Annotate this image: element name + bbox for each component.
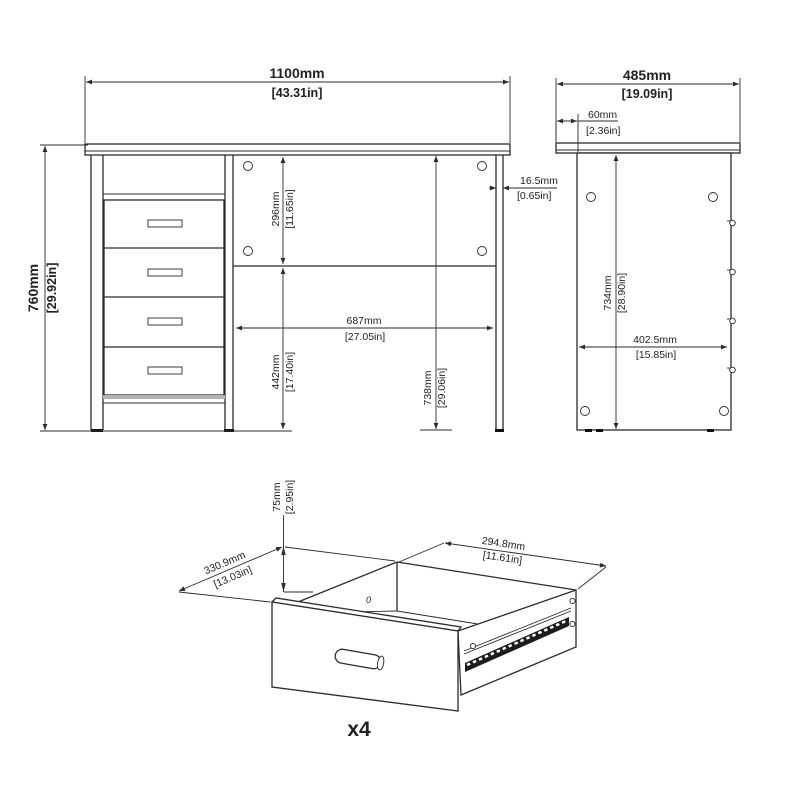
dim-front-height-mm: 760mm xyxy=(25,264,41,312)
assembly-drawing-page: 1100mm [43.31in] 760mm [29.92in] 296mm [… xyxy=(0,0,800,800)
technical-drawing-canvas: 1100mm [43.31in] 760mm [29.92in] 296mm [… xyxy=(0,0,800,800)
drawer-handle xyxy=(148,367,182,374)
dim-front-height-in: [29.92in] xyxy=(45,263,59,314)
drawer-view: 0 75mm xyxy=(179,480,606,741)
dim-panel-thickness-in: [0.65in] xyxy=(517,190,552,202)
dim-drawer-height-in: [2.95in] xyxy=(284,480,296,515)
front-desktop xyxy=(85,144,510,155)
cam-hole xyxy=(244,247,253,256)
dim-back-panel-in: [11.65in] xyxy=(284,189,296,229)
dim-front-width-mm: 1100mm xyxy=(269,65,324,81)
cam-hole xyxy=(244,162,253,171)
front-drawer-stack xyxy=(103,194,225,403)
rail-screw xyxy=(470,643,475,648)
dim-side-panel-depth-in: [15.85in] xyxy=(636,349,676,361)
drawer-handle xyxy=(148,318,182,325)
dim-side-panel-height-mm: 734mm xyxy=(602,275,614,310)
dim-panel-thickness-mm: 16.5mm xyxy=(520,175,558,187)
drawer-quantity-label: x4 xyxy=(347,718,371,741)
dim-side-panel-height-in: [28.90in] xyxy=(616,273,628,313)
side-panel xyxy=(577,153,731,430)
dim-under-drawer-in: [17.40in] xyxy=(284,352,296,392)
dim-under-drawer-mm: 442mm xyxy=(270,354,282,389)
side-desktop xyxy=(556,143,740,153)
drawer-dimensions: 75mm [2.95in] 330.9mm [13.03in] 294.8mm … xyxy=(179,480,606,602)
rail-screw xyxy=(570,621,575,626)
dim-drawer-height-mm: 75mm xyxy=(271,482,283,511)
drawer-handle xyxy=(148,220,182,227)
dim-side-panel-depth-mm: 402.5mm xyxy=(633,334,677,346)
dim-under-top-in: [29.06in] xyxy=(436,368,448,408)
side-view: 485mm [19.09in] 60mm [2.36in] 734mm [28.… xyxy=(556,67,740,432)
dim-side-depth-in: [19.09in] xyxy=(622,87,673,101)
dim-side-overhang-mm: 60mm xyxy=(588,109,617,121)
dim-knee-space-in: [27.05in] xyxy=(345,331,385,343)
front-view: 1100mm [43.31in] 760mm [29.92in] 296mm [… xyxy=(25,65,558,432)
dim-under-top-mm: 738mm xyxy=(422,370,434,405)
drawer-right-wall xyxy=(458,590,576,695)
cam-hole xyxy=(478,247,487,256)
dim-side-depth-mm: 485mm xyxy=(623,67,671,83)
dim-front-width-in: [43.31in] xyxy=(272,86,323,100)
drawer-handle xyxy=(148,269,182,276)
drawer-zero-mark: 0 xyxy=(366,595,371,605)
kick-rail xyxy=(103,395,225,399)
dim-knee-space-mm: 687mm xyxy=(346,315,381,327)
drawer-front-panel xyxy=(272,598,461,711)
dim-side-overhang-in: [2.36in] xyxy=(586,125,621,137)
rail-screw xyxy=(570,598,575,603)
front-feet xyxy=(40,429,504,432)
dim-back-panel-mm: 296mm xyxy=(270,191,282,226)
cam-hole xyxy=(478,162,487,171)
